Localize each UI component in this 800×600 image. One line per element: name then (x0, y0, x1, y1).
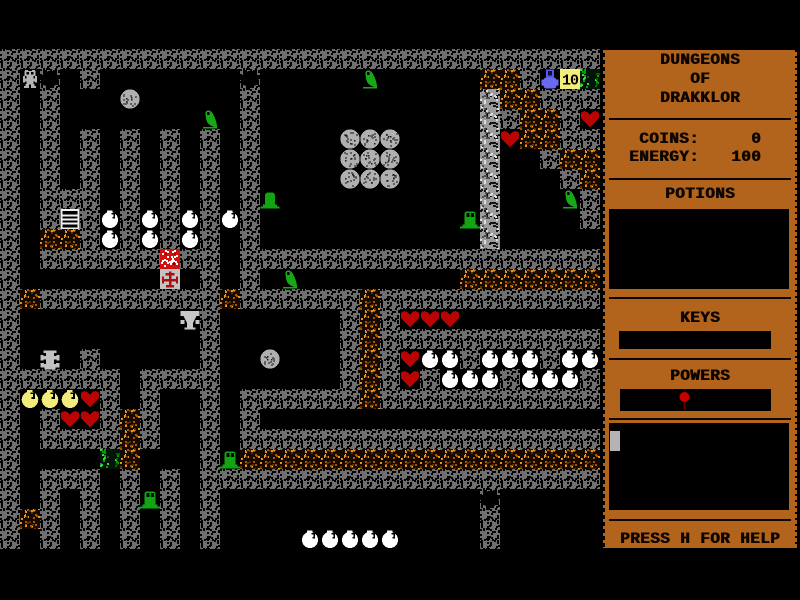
svg-text:10: 10 (562, 73, 579, 90)
